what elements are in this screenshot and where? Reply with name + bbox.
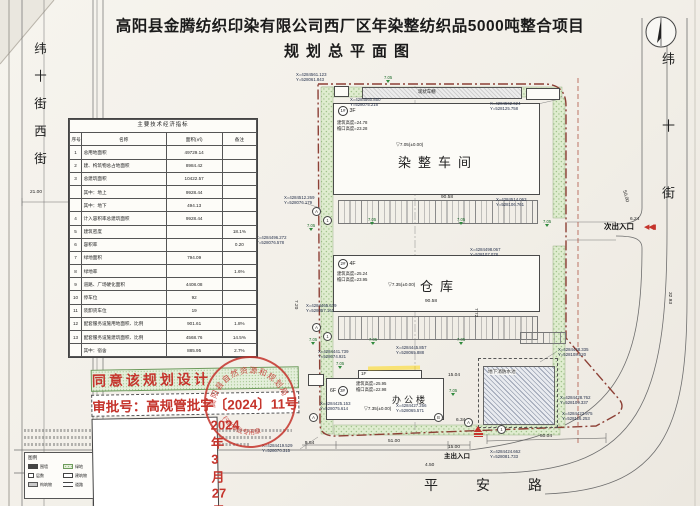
legend-item: 层数 [28, 473, 63, 479]
coordinate-label: X=4284562.624Y=528125.758 [490, 101, 520, 112]
dimension-label: 5.54 [305, 441, 314, 446]
coordinate-label: X=4284424.662Y=528081.733 [490, 449, 520, 460]
legend-item-label: 层数 [36, 473, 44, 479]
table-col-header: 面积(㎡) [166, 133, 222, 146]
elevation-marker: 7.05 [369, 338, 377, 345]
table-row: 2建、构筑物总占地面积8984.42 [70, 159, 257, 172]
building2-number: 2# [338, 259, 348, 269]
building3-tag: 6F 3# [330, 386, 348, 396]
elevation-triangle-icon [459, 222, 463, 225]
building3-number: 3# [338, 386, 348, 396]
indicators-table-wrap: 主要技术经济指标序号名称面积(㎡)备注1总用地面积49729.142建、构筑物总… [68, 118, 258, 358]
table-row: 12配套服务设施用地面积、比例901.611.8% [70, 317, 257, 330]
elevation-triangle-icon [309, 228, 313, 231]
building1-height: 建筑高度=24.78 [337, 120, 367, 126]
main-entrance-arrow-icon [472, 426, 484, 437]
elevation-triangle-icon [338, 366, 342, 369]
building3-eave: 檐口高度=22.98 [356, 387, 386, 393]
elevation-marker: 7.05 [457, 218, 465, 225]
building2-attrs: 建筑高度=25.24 檐口高度=23.95 [337, 271, 367, 283]
building-gatehouse [334, 86, 349, 97]
table-row: 8绿地率1.6% [70, 265, 257, 278]
dimension-label: 90.58 [425, 299, 437, 304]
dimension-label: 15.04 [448, 373, 460, 378]
legend-symbol-icon [63, 482, 73, 487]
building-dye-workshop [333, 103, 540, 195]
north-compass-icon [646, 17, 676, 47]
table-row: 6容积率0.20 [70, 238, 257, 251]
coordinate-label: X=4284445.857Y=528065.888 [396, 345, 426, 356]
street-name-west: 纬十街西街 [30, 42, 49, 180]
shed-label: 现状车棚 [418, 89, 436, 95]
building1-floors: 3F [349, 108, 355, 114]
main-entrance-label: 主出入口 [444, 450, 470, 460]
coordinate-label: X=4284512.269Y=528076.179 [284, 195, 314, 206]
building2-floors: 4F [349, 261, 355, 267]
secondary-entrance-label: 次出入口 [604, 221, 634, 232]
building2-eave: 檐口高度=23.95 [337, 277, 367, 283]
building1-eave: 檐口高度=23.28 [337, 126, 367, 132]
building1-number: 1# [338, 106, 348, 116]
building2-elevation: ▽7.35(±0.00) [388, 282, 415, 288]
bike-shed-strip [362, 87, 522, 99]
coordinate-label: X=4284496.272Y=528076.578 [256, 235, 286, 246]
legend-symbol-icon [63, 473, 73, 478]
building2-height: 建筑高度=25.24 [337, 271, 367, 277]
building2-name: 仓库 [420, 276, 460, 295]
legend-symbol-icon [28, 464, 38, 469]
elevation-marker: 7.05 [307, 224, 315, 231]
elevation-triangle-icon [370, 222, 374, 225]
dimension-label: 32.93 [667, 292, 672, 304]
building2-tag: 2# 4F [338, 259, 356, 269]
coordinate-label: X=4284561.123Y=528061.843 [296, 72, 326, 83]
elevation-marker: 7.05 [309, 338, 317, 345]
elevation-marker: 7.05 [336, 362, 344, 369]
coordinate-label: X=4284428.762Y=528109.337 [560, 395, 590, 406]
coordinate-label: X=4284425.153Y=528075.614 [320, 401, 350, 412]
indicators-table: 主要技术经济指标序号名称面积(㎡)备注1总用地面积49729.142建、构筑物总… [69, 119, 257, 357]
table-row: 其中：宿舍885.952.7% [70, 344, 257, 357]
axis-marker: 1 [497, 425, 506, 434]
dimension-label: 90.58 [441, 195, 453, 200]
elevation-marker: 7.05 [457, 338, 465, 345]
approval-date: 2024年3月27日 [92, 417, 220, 506]
table-row: 13配套服务设施建筑面积、比例4568.7614.5% [70, 331, 257, 344]
elevation-triangle-icon [451, 393, 455, 396]
axis-marker: A [312, 323, 321, 332]
table-row: 10停车位92 [70, 291, 257, 304]
dimension-label: 7.20 [293, 300, 298, 309]
table-row: 1总用地面积49729.14 [70, 146, 257, 159]
dimension-label: 4.50 [425, 463, 434, 468]
legend-item-label: 绿地 [75, 464, 83, 470]
drawing-title: 规划总平面图 [60, 40, 640, 61]
table-col-header: 序号 [70, 133, 82, 146]
pool-label: 地下消防水池 [488, 369, 516, 375]
legend-item-label: 道路 [75, 482, 83, 488]
axis-marker: A [312, 207, 321, 216]
annex-label: 1F [361, 371, 366, 376]
axis-marker: 1 [323, 216, 332, 225]
elevation-triangle-icon [371, 342, 375, 345]
table-col-header: 名称 [82, 133, 166, 146]
table-title: 主要技术经济指标 [70, 120, 257, 133]
table-row: 7绿地面积794.09 [70, 251, 257, 264]
legend-symbol-icon [63, 464, 73, 469]
elevation-triangle-icon [545, 224, 549, 227]
coordinate-label: X=4284560.850Y=528075.216 [350, 97, 380, 108]
dimension-label: 50.04 [540, 434, 552, 439]
building-small-north [526, 88, 560, 100]
legend-symbol-icon [28, 473, 34, 478]
table-row: 3总建筑面积10422.57 [70, 172, 257, 185]
axis-marker: A [309, 413, 318, 422]
coordinate-label: X=4284448.335Y=528108.520 [558, 347, 588, 358]
elevation-triangle-icon [459, 342, 463, 345]
official-seal: 高阳县自然资源和规划局 行政审批专用章 [204, 356, 296, 448]
coordinate-label: X=4284423.975Y=528116.253 [562, 411, 592, 422]
svg-text:高阳县自然资源和规划局: 高阳县自然资源和规划局 [207, 365, 290, 408]
table-row: 11装卸货车位19 [70, 304, 257, 317]
sheet-title: 高阳县金腾纺织印染有限公司西厂区年染整纺织品5000吨整合项目 规划总平面图 [60, 14, 640, 61]
building3-attrs: 建筑高度=25.95 檐口高度=22.98 [356, 381, 386, 393]
axis-marker: 1 [323, 332, 332, 341]
parking-row-east [520, 332, 566, 344]
elevation-marker: 7.05 [368, 218, 376, 225]
dimension-label: 51.00 [388, 439, 400, 444]
building-office-annex [358, 370, 422, 379]
seal-org-text: 高阳县自然资源和规划局 [207, 365, 290, 408]
project-title: 高阳县金腾纺织印染有限公司西厂区年染整纺织品5000吨整合项目 [60, 14, 640, 36]
building3-floors: 6F [330, 388, 336, 394]
legend-item: 构筑物 [28, 482, 63, 488]
building3-height: 建筑高度=25.95 [356, 381, 386, 387]
dimension-label: 21.00 [30, 190, 42, 195]
elevation-triangle-icon [386, 80, 390, 83]
table-row: 其中：地下494.13 [70, 199, 257, 212]
parking-row-south [338, 316, 538, 340]
axis-marker: B [434, 413, 443, 422]
coordinate-label: X=4284441.739Y=528074.921 [318, 349, 348, 360]
table-row: 4计入容积率总建筑面积9928.44 [70, 212, 257, 225]
secondary-entrance-arrow-icon: ◀◀▮ [644, 223, 656, 231]
coordinate-label: X=4284427.256Y=528065.571 [396, 403, 426, 414]
coordinate-label: X=4284498.067Y=528107.078 [470, 247, 500, 258]
legend-item-label: 围墙 [40, 464, 48, 470]
legend-item-label: 建筑物 [75, 473, 87, 479]
elevation-marker: 7.05 [384, 76, 392, 83]
table-col-header: 备注 [222, 133, 256, 146]
building1-name: 染整车间 [398, 152, 478, 171]
table-row: 其中：地上9928.44 [70, 185, 257, 198]
building1-elevation: ▽7.05(±0.00) [396, 142, 423, 148]
legend-item-label: 构筑物 [40, 482, 52, 488]
legend-item: 围墙 [28, 464, 63, 470]
building3-elevation: ▽7.35(±0.00) [364, 406, 391, 412]
coordinate-label: X=4284465.679Y=528057.161 [306, 303, 336, 314]
elevation-marker: 7.05 [543, 220, 551, 227]
svg-text:行政审批专用章: 行政审批专用章 [220, 414, 262, 437]
legend-symbol-icon [28, 482, 38, 487]
street-name-south: 平安路 [424, 475, 580, 495]
building1-attrs: 建筑高度=24.78 檐口高度=23.28 [337, 120, 367, 132]
coordinate-label: X=4284514.063Y=528106.761 [496, 197, 526, 208]
street-name-east: 纬十街 [658, 52, 677, 253]
elevation-triangle-icon [311, 342, 315, 345]
seal-bottom-text: 行政审批专用章 [220, 414, 262, 437]
building-utility-room [308, 374, 324, 386]
elevation-marker: 7.05 [449, 389, 457, 396]
table-row: 5建筑密度18.1% [70, 225, 257, 238]
site-plan-sheet: 高阳县金腾纺织印染有限公司西厂区年染整纺织品5000吨整合项目 规划总平面图 纬… [0, 0, 700, 506]
table-row: 9道路、广场硬化面积4408.08 [70, 278, 257, 291]
dimension-label: 7.72 [473, 308, 478, 317]
